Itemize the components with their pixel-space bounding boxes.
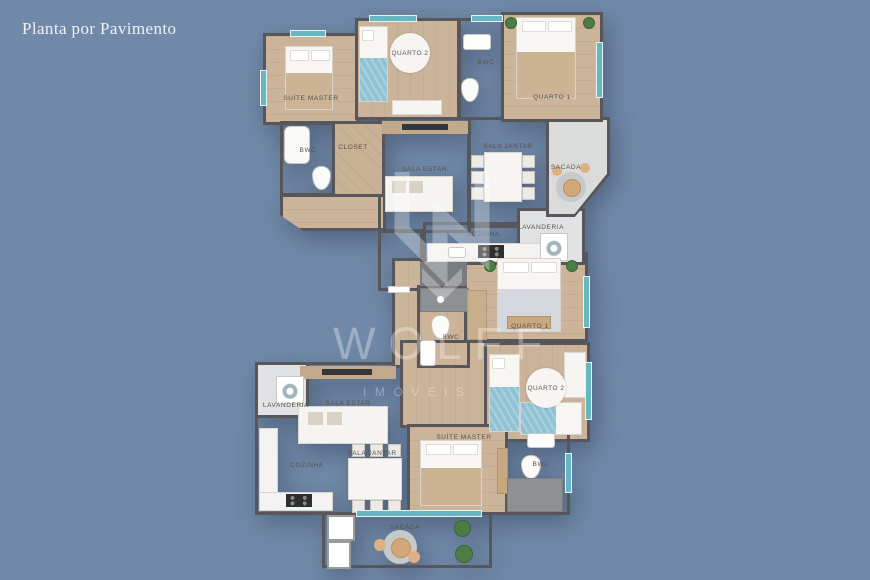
cushion — [392, 181, 406, 193]
cushion — [308, 412, 323, 425]
hall-upper — [280, 193, 386, 231]
room-label-cozinha-lower: COZINHA — [270, 462, 344, 469]
door — [388, 286, 410, 293]
floor-plan-page: { "title": "Planta por Pavimento", "wate… — [0, 0, 870, 580]
plant — [566, 260, 578, 272]
room-label-sala-estar-upper: SALA ESTAR — [378, 166, 471, 173]
desk — [392, 100, 442, 115]
bed — [489, 354, 520, 432]
room-label-bwc-suite-lower: BWC — [519, 461, 563, 468]
entry-hall — [420, 262, 467, 286]
stove — [286, 494, 312, 507]
shower — [420, 288, 469, 312]
plant — [583, 17, 595, 29]
bathtub — [284, 126, 310, 164]
tv — [322, 369, 372, 375]
page-title: Planta por Pavimento — [22, 19, 176, 39]
desk — [564, 352, 586, 398]
plant — [484, 260, 496, 272]
room-label-quarto1-upper: QUARTO 1 — [501, 94, 603, 101]
room-closet-upper — [332, 121, 385, 197]
window — [471, 15, 503, 22]
window — [565, 453, 572, 493]
room-label-bwc-top-upper: BWC — [462, 59, 510, 66]
window — [583, 276, 590, 328]
bed — [516, 17, 576, 99]
bed — [420, 440, 482, 506]
room-label-sala-jantar-lower: SALA JANTAR — [335, 450, 409, 457]
room-label-sacada-lower: SACADA — [370, 524, 440, 531]
window — [369, 15, 417, 22]
room-label-sala-estar-lower: SALA ESTAR — [300, 400, 396, 407]
sink — [420, 340, 436, 366]
room-sala-estar-upper — [378, 117, 471, 233]
balcony-door — [327, 541, 351, 569]
door-knob — [437, 296, 444, 303]
room-label-sacada-upper: SACADA — [534, 164, 598, 171]
dining-table — [484, 152, 522, 202]
washing-machine — [540, 233, 568, 261]
vestibule-upper — [378, 229, 423, 291]
dining-table — [348, 458, 402, 500]
sink — [463, 34, 491, 50]
cushion — [327, 412, 342, 425]
plant — [505, 17, 517, 29]
plant — [455, 545, 473, 563]
bed — [359, 26, 388, 102]
balcony-door — [327, 515, 355, 541]
window — [356, 510, 482, 517]
room-label-quarto2-lower: QUARTO 2 — [526, 368, 566, 408]
room-label-sala-jantar-upper: SALA JANTAR — [467, 143, 549, 150]
sink — [527, 433, 555, 448]
room-label-quarto1-lower: QUARTO 1 — [479, 323, 581, 330]
balcony-table — [563, 179, 581, 197]
stool — [374, 539, 386, 551]
room-label-quarto2-upper: QUARTO 2 — [390, 33, 430, 73]
room-label-suite-master-lower: SUÍTE MASTER — [416, 434, 512, 441]
window — [596, 42, 603, 98]
stove — [478, 245, 504, 258]
room-label-cozinha-upper: COZINHA — [446, 231, 520, 238]
shower — [507, 478, 563, 512]
window — [585, 362, 592, 420]
room-label-lavanderia-upper: LAVANDERIA — [507, 224, 575, 231]
wardrobe — [467, 290, 487, 340]
sink — [448, 247, 466, 258]
plant — [454, 520, 471, 537]
room-label-bwc-hall-lower: BWC — [429, 334, 473, 341]
tv — [402, 124, 448, 130]
stool — [408, 551, 420, 563]
room-label-closet-upper: CLOSET — [328, 144, 378, 151]
floor-plan: SUÍTE MASTER QUARTO 2 BWC QUARTO 1 BWC C… — [0, 0, 870, 580]
window — [290, 30, 326, 37]
room-label-suite-master-upper: SUÍTE MASTER — [263, 95, 359, 102]
cushion — [409, 181, 423, 193]
